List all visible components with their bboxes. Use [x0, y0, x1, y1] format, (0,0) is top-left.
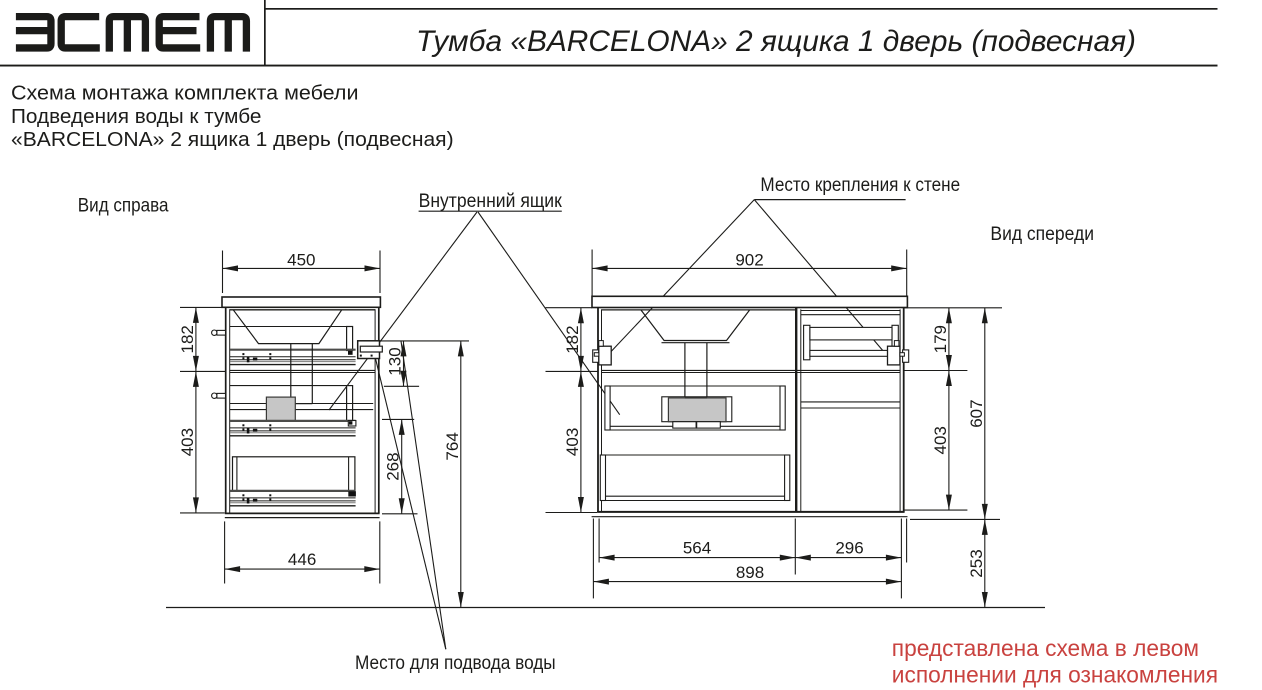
- svg-text:Место для подвода воды: Место для подвода воды: [355, 653, 556, 674]
- svg-text:268: 268: [384, 452, 403, 480]
- svg-text:564: 564: [683, 539, 711, 558]
- svg-text:Тумба «BARCELONA» 2 ящика 1 дв: Тумба «BARCELONA» 2 ящика 1 дверь (подве…: [416, 25, 1136, 58]
- svg-text:Внутренний ящик: Внутренний ящик: [419, 191, 563, 212]
- svg-text:Вид спереди: Вид спереди: [990, 224, 1094, 245]
- svg-text:898: 898: [736, 563, 764, 582]
- svg-text:Место крепления к стене: Место крепления к стене: [760, 175, 960, 196]
- svg-text:253: 253: [967, 549, 986, 577]
- svg-text:403: 403: [178, 428, 197, 456]
- svg-text:182: 182: [563, 325, 582, 353]
- svg-text:130: 130: [386, 347, 405, 375]
- svg-text:403: 403: [931, 426, 950, 454]
- svg-text:607: 607: [967, 399, 986, 427]
- svg-text:представлена схема в левом: представлена схема в левом: [892, 635, 1199, 661]
- svg-text:Подведения воды к тумбе: Подведения воды к тумбе: [11, 105, 261, 128]
- svg-text:Вид справа: Вид справа: [78, 195, 169, 216]
- svg-text:182: 182: [178, 325, 197, 353]
- svg-text:Схема монтажа комплекта мебели: Схема монтажа комплекта мебели: [11, 82, 359, 105]
- svg-text:403: 403: [563, 428, 582, 456]
- svg-text:179: 179: [931, 325, 950, 353]
- svg-text:764: 764: [443, 432, 462, 460]
- svg-text:исполнении для ознакомления: исполнении для ознакомления: [892, 661, 1218, 687]
- svg-text:446: 446: [288, 550, 316, 569]
- svg-text:450: 450: [287, 251, 315, 270]
- svg-text:«BARCELONA» 2 ящика 1 дверь (п: «BARCELONA» 2 ящика 1 дверь (подвесная): [11, 128, 454, 151]
- svg-text:902: 902: [735, 251, 763, 270]
- svg-text:296: 296: [835, 539, 863, 558]
